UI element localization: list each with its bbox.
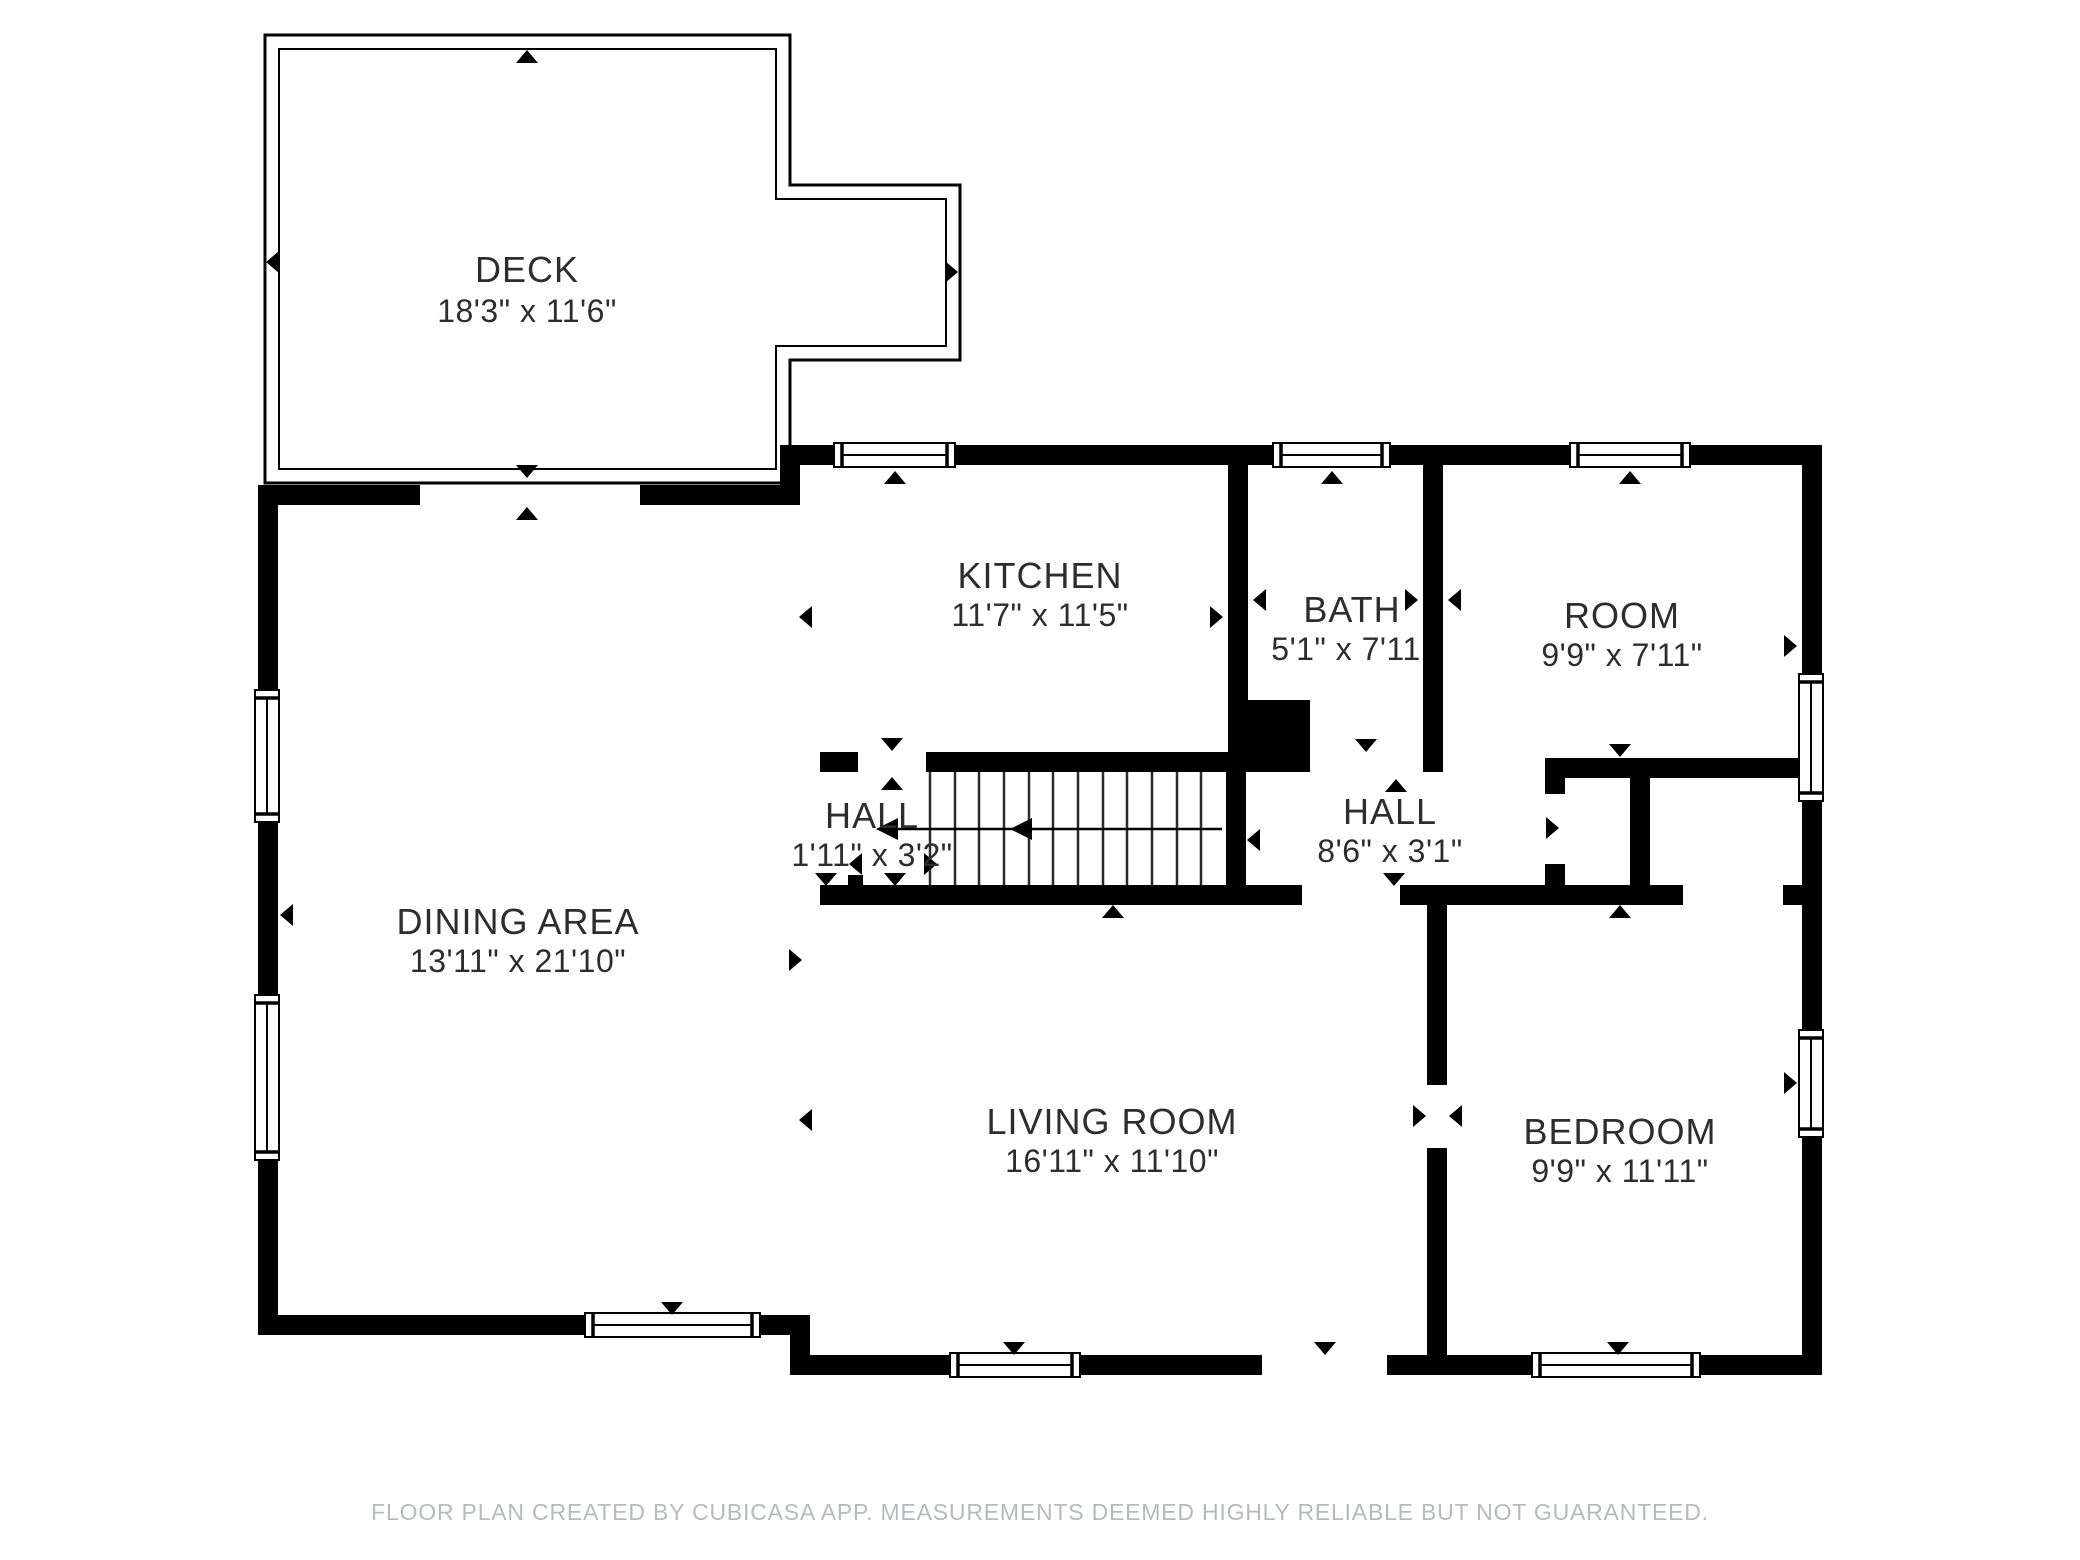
- room-dims-living: 16'11" x 11'10": [1005, 1143, 1219, 1179]
- wall: [1226, 752, 1246, 905]
- wall: [1427, 905, 1447, 1085]
- window: [585, 1313, 760, 1337]
- room-label-kitchen: KITCHEN: [957, 555, 1122, 596]
- wall: [820, 885, 1302, 905]
- wall: [1545, 758, 1802, 778]
- floor-plan-canvas: DECK 18'3" x 11'6" KITCHEN 11'7" x 11'5"…: [0, 0, 2080, 1560]
- floor-plan-page: DECK 18'3" x 11'6" KITCHEN 11'7" x 11'5"…: [0, 0, 2080, 1560]
- wall: [1423, 465, 1443, 772]
- window: [950, 1353, 1080, 1377]
- room-dims-hall: 8'6" x 3'1": [1317, 833, 1462, 869]
- wall: [1545, 864, 1565, 885]
- window: [834, 443, 955, 467]
- room-label-hall: HALL: [1343, 791, 1437, 832]
- window: [1799, 1030, 1823, 1137]
- wall: [1400, 885, 1545, 905]
- wall: [780, 445, 800, 505]
- window: [1273, 443, 1390, 467]
- wall: [1545, 778, 1565, 794]
- room-label-deck: DECK: [475, 249, 579, 290]
- room-label-dining: DINING AREA: [396, 901, 639, 942]
- wall: [1228, 465, 1248, 700]
- footer-disclaimer: FLOOR PLAN CREATED BY CUBICASA APP. MEAS…: [371, 1499, 1709, 1525]
- window: [1532, 1353, 1700, 1377]
- wall: [1427, 1148, 1447, 1355]
- room-label-bath: BATH: [1303, 589, 1400, 630]
- wall: [926, 752, 1226, 772]
- wall: [1630, 778, 1650, 885]
- room-dims-room: 9'9" x 7'11": [1541, 637, 1702, 673]
- wall: [820, 752, 858, 772]
- wall: [258, 505, 278, 1335]
- wall: [258, 485, 420, 505]
- wall: [1545, 885, 1683, 905]
- wall: [1783, 885, 1802, 905]
- wall: [640, 485, 800, 505]
- room-label-bedroom: BEDROOM: [1523, 1111, 1716, 1152]
- room-label-living: LIVING ROOM: [986, 1101, 1237, 1142]
- room-dims-kitchen: 11'7" x 11'5": [951, 597, 1128, 633]
- room-label-room: ROOM: [1564, 595, 1680, 636]
- window: [1570, 443, 1690, 467]
- room-dims-hall-small: 1'11" x 3'2": [791, 837, 952, 873]
- window: [1799, 674, 1823, 801]
- room-dims-bedroom: 9'9" x 11'11": [1531, 1153, 1708, 1189]
- room-dims-deck: 18'3" x 11'6": [437, 293, 617, 329]
- window: [255, 995, 279, 1160]
- wall: [848, 875, 863, 885]
- window: [255, 690, 279, 822]
- room-label-hall-small: HALL: [825, 795, 919, 836]
- room-dims-bath: 5'1" x 7'11: [1271, 631, 1420, 667]
- room-dims-dining: 13'11" x 21'10": [410, 943, 626, 979]
- wall: [1802, 465, 1822, 1375]
